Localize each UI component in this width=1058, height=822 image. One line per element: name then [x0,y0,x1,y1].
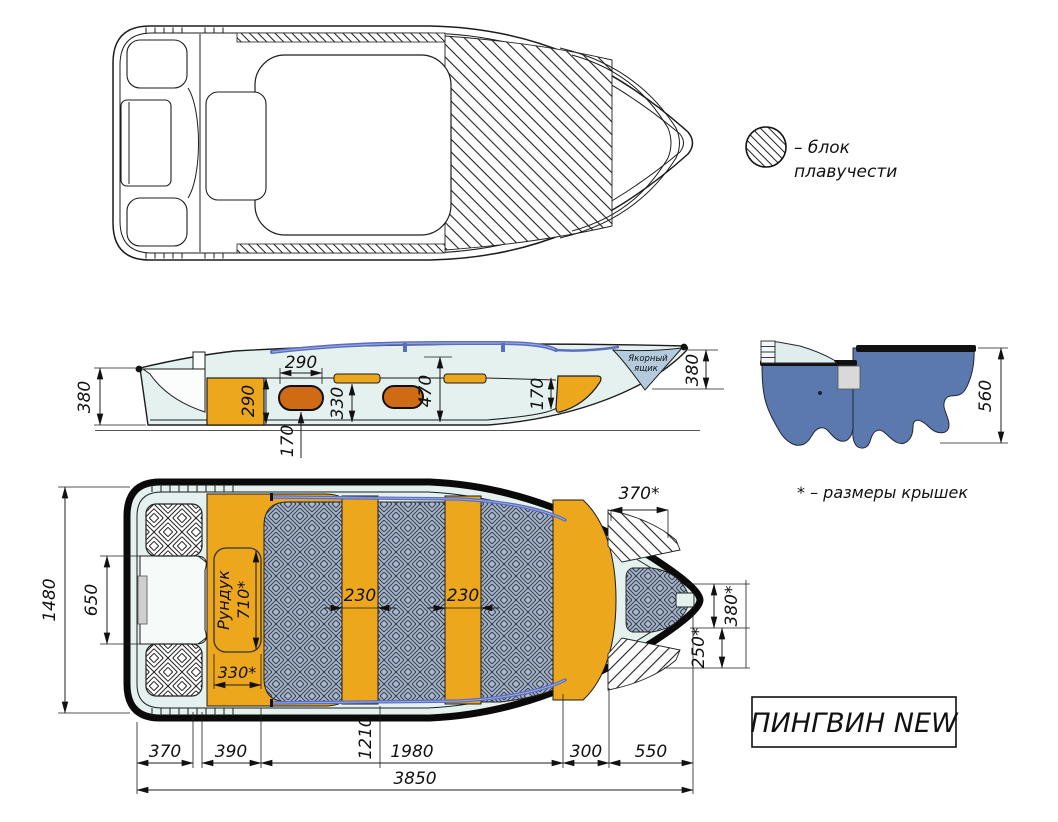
dim-locker-length: 710* [234,581,253,620]
dim-stern-height: 380 [75,381,95,413]
gunwale-strip-bottom [237,244,445,253]
dim-hull-depth: 560 [976,380,996,412]
dim-beam: 1480 [40,578,60,621]
gunwale-strip-top [237,33,445,42]
dim-bow-hatch-side: 250* [689,628,709,669]
bow-cleat-notch [676,593,694,607]
stern-corner-seat-top [127,40,187,88]
bow-cleat-dot [681,344,688,351]
section-grab-ladder [761,341,775,363]
dim-overall-length: 3850 [393,769,436,789]
dim-bow-height: 380 [683,354,703,386]
transom-motor-plate [138,576,147,624]
dim-cockpit-length: 1980 [390,742,433,762]
covers-note: * – размеры крышек [797,483,968,502]
anchor-box-label-line2: ящик [634,364,659,374]
side-shelf-pad-1 [334,374,380,383]
top-view [113,26,693,260]
dim-bench-mid-width: 230 [447,586,479,606]
stern-corner-seat-bottom [127,198,187,246]
side-shelf-pad-2 [444,374,486,383]
stern-cleat-dot [136,366,143,373]
dim-stern-section: 390 [215,742,247,762]
dim-bench-height: 290 [239,385,259,417]
boat-drawing-sheet: – блок плавучести Якорный ящик [0,0,1058,822]
dim-shelf-height: 330 [328,387,348,419]
dim-locker-width: 330* [218,663,257,682]
dim-transom-to-bench: 1210 [356,716,376,759]
dim-tank-width: 290 [285,353,317,373]
cockpit-seat-panel [255,55,451,235]
legend-label-line1: – блок [794,138,851,158]
dim-bow-hatch-length: 380* [722,586,742,627]
section-motor-mount [838,366,860,389]
dim-stern-overhang: 370 [149,742,181,762]
plan-view: Рундук 710* 330* 230 230 1480 650 [40,482,750,718]
fuel-tank-1 [279,386,323,410]
buoyancy-block-stern-top [146,504,202,556]
buoyancy-legend: – блок плавучести [746,127,897,182]
stern-seatback-curve [188,88,199,198]
transom-post [193,352,205,369]
foredeck-buoyancy-hatch [445,36,612,250]
cockpit-floor-plate [264,502,578,702]
bow-buoyancy-lower [608,638,680,690]
locker-label: Рундук [214,570,233,630]
dim-bow-locker-height: 170 [528,378,548,410]
title-block: ПИНГВИН NEW [750,697,959,747]
model-name: ПИНГВИН NEW [750,708,959,739]
section-console [766,342,836,363]
dim-bow-overhang: 550 [635,742,667,762]
anchor-box-label-line1: Якорный [627,354,668,364]
side-view: Якорный ящик 380 290 290 170 [75,343,724,458]
legend-label-line2: плавучести [794,162,897,182]
dim-tank-offset: 170 [278,425,298,457]
bow-buoyancy-upper [608,510,680,562]
dim-cockpit-depth: 470 [416,375,436,407]
section-gunwale-bar-right [856,345,976,352]
cockpit-side-seat [206,92,266,200]
section-hull-right [853,348,974,448]
transom-cutout [140,556,206,644]
dim-bow-section: 300 [570,742,602,762]
section-view: 560 [760,341,1008,448]
dim-transom-width: 650 [82,584,102,616]
dim-bow-hatch-width: 370* [619,484,660,504]
dim-bench-front-width: 230 [344,586,376,606]
buoyancy-hatch-icon [746,127,786,167]
buoyancy-block-stern-bottom [146,644,202,696]
section-drain-dot [818,391,822,395]
